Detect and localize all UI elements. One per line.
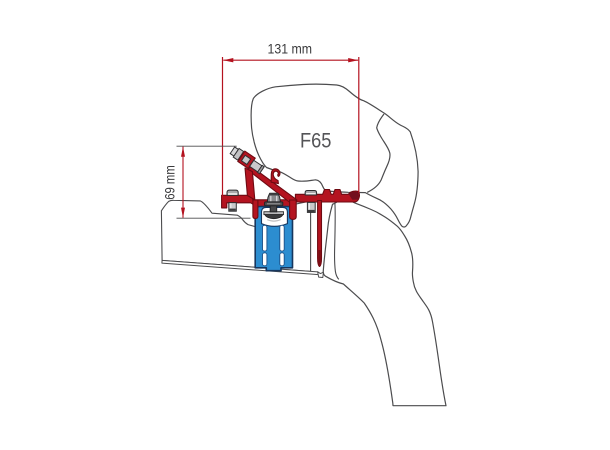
svg-text:69 mm: 69 mm [161, 165, 177, 200]
svg-text:F65: F65 [300, 129, 332, 153]
svg-text:131 mm: 131 mm [268, 41, 313, 57]
